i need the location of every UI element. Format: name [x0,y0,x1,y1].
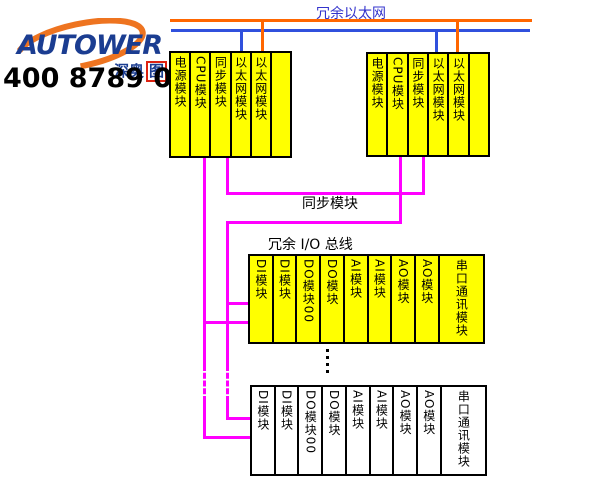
io-module: DI模块 [274,387,298,474]
io-module: AO模块 [416,387,440,474]
io-module: AI模块 [369,387,393,474]
controller-module [270,53,290,156]
io-module: 串口通讯模块 [440,387,485,474]
io-rack-2: DI模块DI模块DO模块00DO模块AI模块AI模块AO模块AO模块串口通讯模块 [250,385,487,476]
rack-continuation-ellipsis [326,349,329,373]
controller-rack-1: 电源模块CPU模块同步模块以太网模块以太网模块 [169,51,292,158]
bus-line-cpu1-vertical [203,158,206,365]
controller-module: CPU模块 [386,54,406,155]
bus-line-rack2-upper-horizontal [226,417,253,420]
bus-continuation-dashed-b [226,365,229,402]
io-rack-1: DI模块DI模块DO模块00DO模块AI模块AI模块AO模块AO模块串口通讯模块 [248,254,485,344]
system-architecture-diagram: AUTOWER 深奥图 400 8789 055 冗余以太网 电源模块CPU模块… [0,0,600,480]
io-module: DO模块00 [295,256,319,342]
controller-rack-2: 电源模块CPU模块同步模块以太网模块以太网模块 [366,52,490,157]
controller-module: 以太网模块 [447,54,467,155]
controller-module: 电源模块 [171,53,189,156]
io-module: DI模块 [250,256,272,342]
sync-module-label: 同步模块 [302,193,358,213]
ethernet-drop-orange-rack2 [456,19,459,54]
io-module: AO模块 [414,256,438,342]
ethernet-drop-blue-rack2 [435,29,438,54]
controller-module: 以太网模块 [427,54,447,155]
io-module: DI模块 [252,387,274,474]
controller-module: 以太网模块 [250,53,270,156]
bus-line-rack2-lower-vertical [203,402,206,439]
io-module: AI模块 [345,387,369,474]
controller-module: 以太网模块 [230,53,250,156]
io-module: AO模块 [392,387,416,474]
controller-module: 同步模块 [209,53,229,156]
io-module: DO模块 [319,256,343,342]
bus-line-rack1-upper-horizontal [227,302,250,305]
bus-line-cpu2-vertical [226,221,229,365]
io-module: DO模块 [321,387,345,474]
controller-module: CPU模块 [189,53,209,156]
io-bus-label: 冗余 I/O 总线 [268,234,353,254]
io-module: AI模块 [343,256,367,342]
controller-module [468,54,488,155]
io-module: AI模块 [367,256,391,342]
controller-module: 电源模块 [368,54,386,155]
sync-line-rack1-drop [226,158,229,195]
bus-line-cpu2-horizontal [226,221,402,224]
io-module: AO模块 [390,256,414,342]
ethernet-drop-orange-rack1 [261,19,264,53]
bus-continuation-dashed-a [203,365,206,402]
bus-line-rack2-lower-horizontal [203,436,253,439]
bus-line-cpu2-drop [399,157,402,224]
controller-module: 同步模块 [407,54,427,155]
logo-wordmark: AUTOWER [17,30,162,61]
ethernet-line-blue [171,29,530,32]
io-module: DO模块00 [297,387,321,474]
sync-line-rack2-drop [422,157,425,195]
ethernet-line-orange [170,19,532,22]
ethernet-drop-blue-rack1 [240,29,243,53]
io-module: 串口通讯模块 [438,256,483,342]
io-module: DI模块 [272,256,296,342]
bus-line-rack1-lower-horizontal [203,321,250,324]
